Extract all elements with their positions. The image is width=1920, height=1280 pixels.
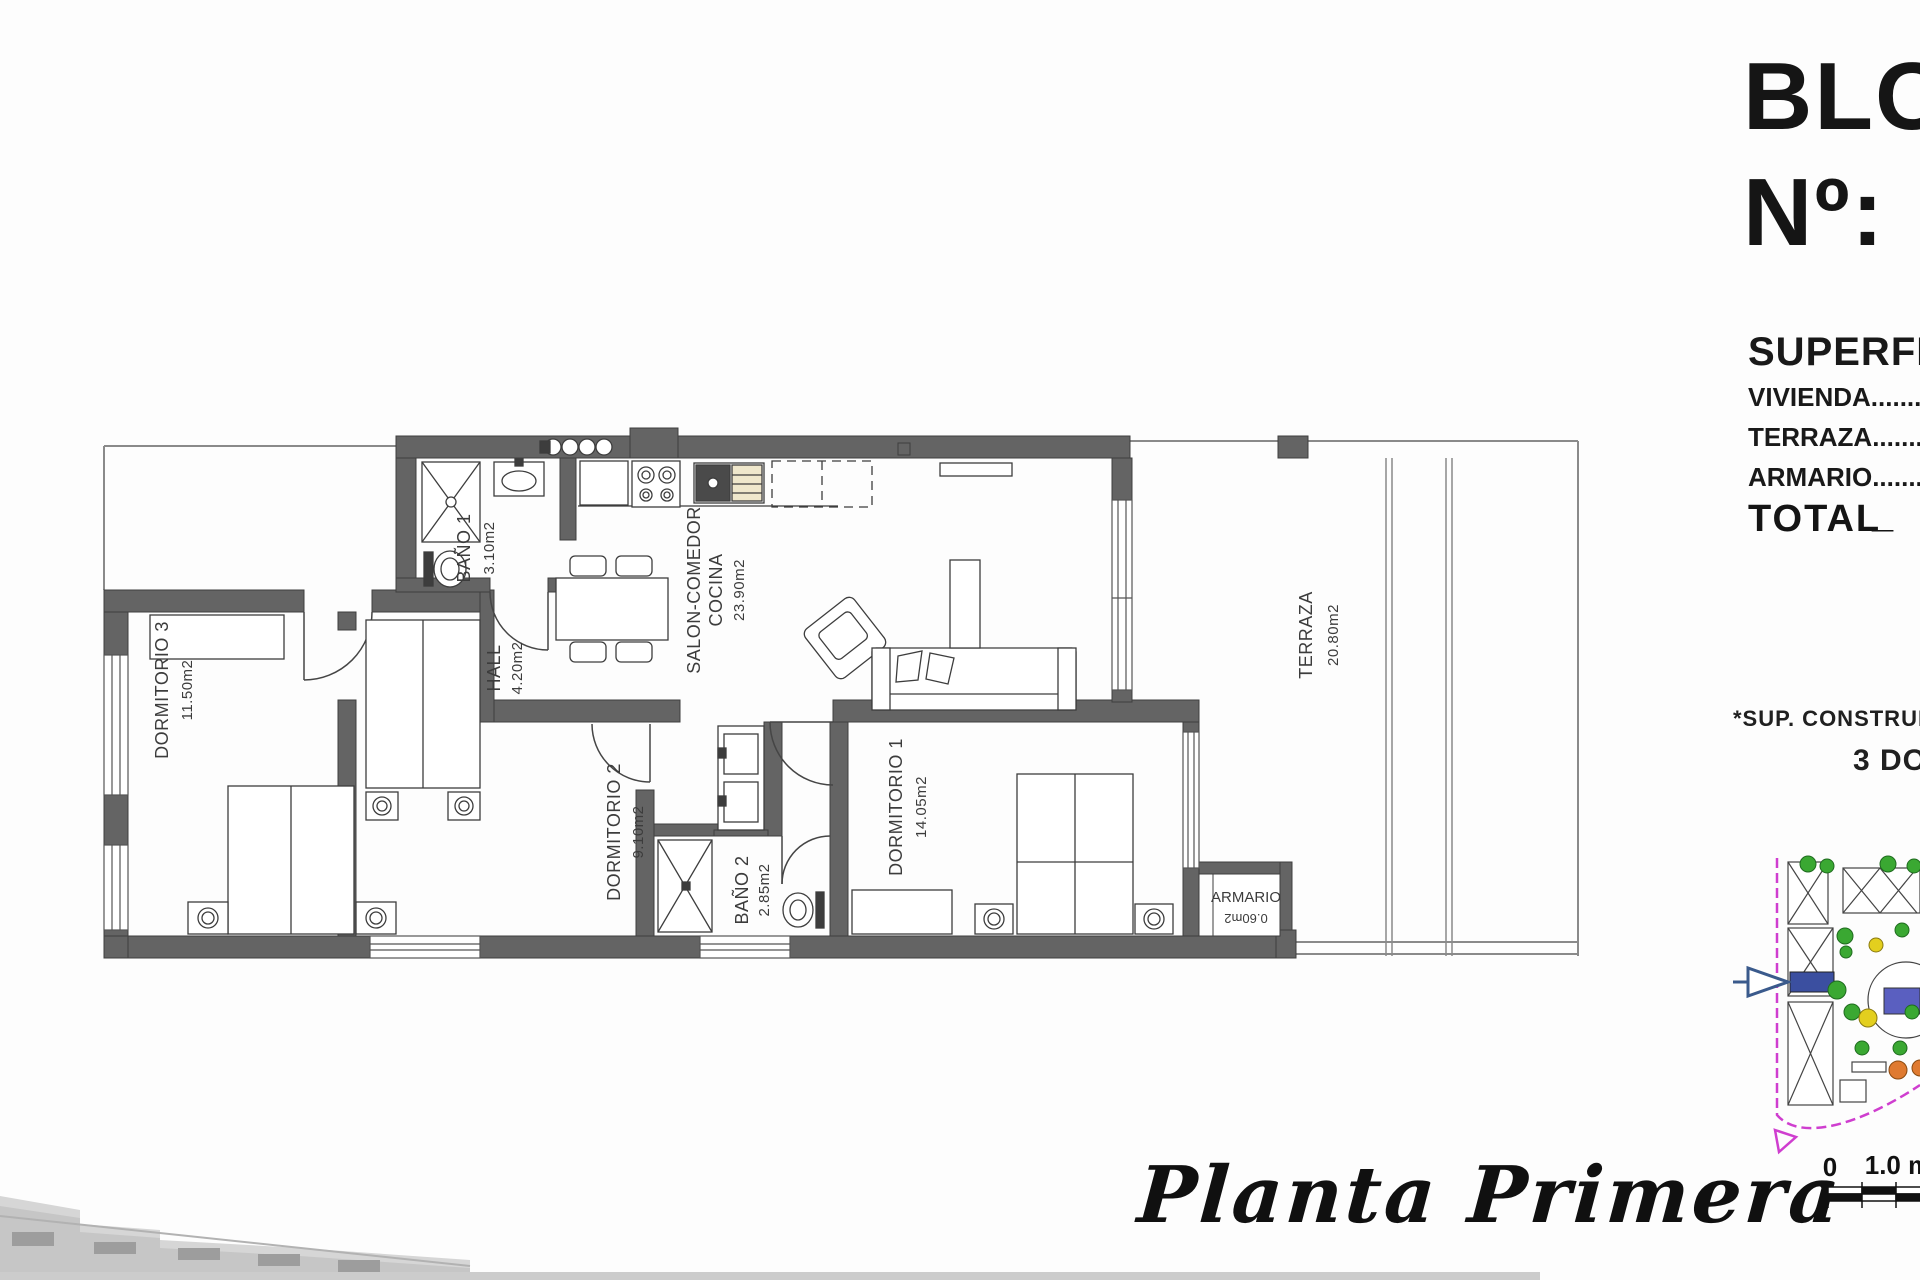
- label-dormitorio-2-name: DORMITORIO 2: [604, 763, 624, 901]
- label-bano-1-name: BAÑO 1: [453, 513, 474, 582]
- furniture-dining: [556, 556, 668, 662]
- label-hall-name: HALL: [484, 644, 504, 691]
- furniture-dormitorio-2: [366, 620, 480, 820]
- label-dormitorio-1-name: DORMITORIO 1: [886, 738, 906, 876]
- label-bano-2-area: 2.85m2: [756, 863, 773, 916]
- site-trees-orange: [1889, 1060, 1920, 1079]
- site-boundary-arrow-icon: [1775, 1130, 1796, 1152]
- site-highlighted-unit: [1790, 972, 1834, 992]
- label-salon-area: 23.90m2: [731, 559, 748, 621]
- label-dormitorio-2-area: 9.10m2: [630, 805, 647, 858]
- label-armario-name: ARMARIO: [1211, 889, 1281, 906]
- label-terraza-area: 20.80m2: [1325, 604, 1342, 666]
- floor-plan-drawing: DORMITORIO 3 11.50m2 BAÑO 1 3.10m2 HALL …: [0, 0, 1920, 1280]
- label-salon-name-2: COCINA: [706, 553, 726, 626]
- label-salon-name-1: SALON-COMEDOR: [684, 506, 704, 674]
- scale-zero-label: 0: [1823, 1152, 1837, 1182]
- site-minimap: [1733, 856, 1920, 1152]
- furniture-living: [801, 560, 1076, 710]
- label-dormitorio-1-area: 14.05m2: [913, 776, 930, 838]
- label-dormitorio-3-name: DORMITORIO 3: [152, 621, 172, 759]
- label-bano-1-area: 3.10m2: [481, 521, 498, 574]
- label-dormitorio-3-area: 11.50m2: [179, 660, 196, 721]
- floorplan-sheet: BLOQUE Nº: SUPERFICIES VIVIENDA.........…: [0, 0, 1920, 1280]
- label-armario-area: 0.60m2: [1224, 911, 1267, 926]
- label-hall-area: 4.20m2: [509, 641, 526, 694]
- label-terraza-name: TERRAZA: [1296, 591, 1316, 679]
- scale-one-label: 1.0 m: [1865, 1150, 1920, 1180]
- terraza-railing: [1386, 458, 1452, 956]
- site-pointer-arrow-icon: [1733, 968, 1788, 996]
- scale-bar: 0 1.0 m: [1823, 1150, 1920, 1208]
- building-render-thumbnail: [0, 1196, 1540, 1280]
- label-bano-2-name: BAÑO 2: [731, 855, 752, 924]
